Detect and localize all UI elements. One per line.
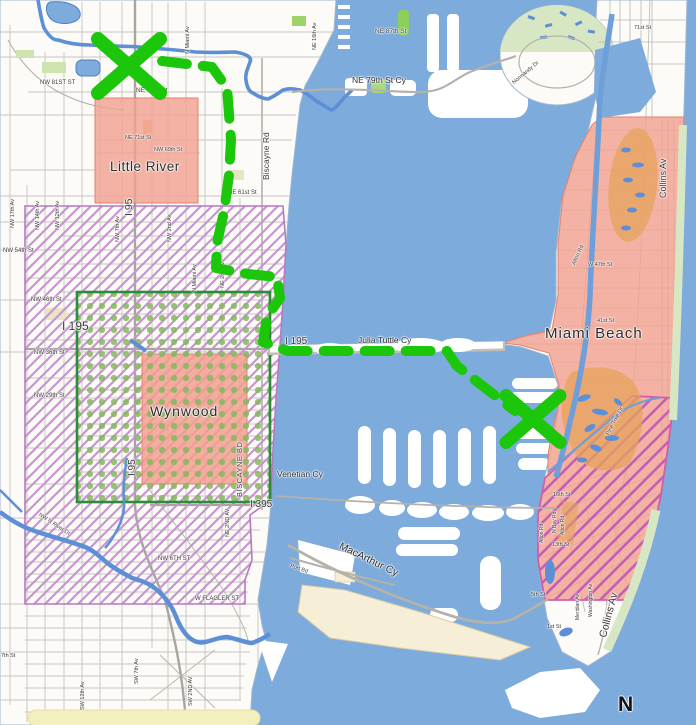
zone-little-river <box>95 98 198 203</box>
zone-midtown-dots <box>77 292 270 502</box>
map-screenshot: NE 87th StNE 16th AvN Miami Av71st StNor… <box>0 0 696 725</box>
map-canvas[interactable] <box>0 0 696 725</box>
yellow-highway-band <box>28 710 260 725</box>
